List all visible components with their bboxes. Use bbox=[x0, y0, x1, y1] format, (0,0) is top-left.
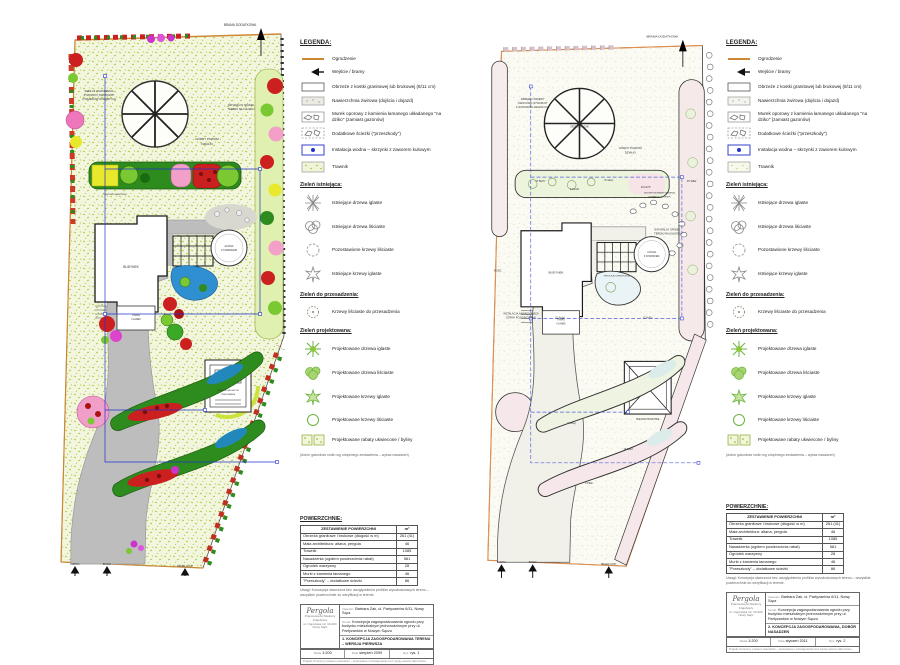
svg-text:TERENU NA CAŁOŚCI: TERENU NA CAŁOŚCI bbox=[654, 233, 680, 236]
rock-garden bbox=[205, 204, 257, 230]
svg-text:TARAS: TARAS bbox=[557, 318, 565, 321]
areas-unit: m² bbox=[823, 514, 844, 521]
gravel-surface-icon bbox=[300, 96, 326, 106]
legend-label: Ogrodzenie bbox=[758, 56, 782, 62]
legend-item-gate: Wejście / bramy bbox=[300, 67, 442, 77]
new-conifer-shrub-icon bbox=[726, 388, 752, 406]
lawn-icon bbox=[726, 161, 752, 173]
areas-header: ZESTAWIENIE POWIERZCHNI bbox=[727, 514, 823, 521]
svg-text:BRAMA GOSP.: BRAMA GOSP. bbox=[601, 563, 617, 566]
svg-text:32 FaTh': 32 FaTh' bbox=[641, 186, 651, 189]
legend-item-surface: Nawierzchnia żwirowa (dojścia i dojazd) bbox=[300, 96, 442, 106]
table-row: Murki z kamienia łamanego46 bbox=[727, 559, 844, 566]
svg-text:GÓRNY POZIOM: GÓRNY POZIOM bbox=[195, 136, 219, 141]
legend-item-kept-deciduous-shrub: Pozostawione krzewy liściaste bbox=[726, 242, 874, 258]
legend-item-new-deciduous-tree: Projektowane drzewa liściaste bbox=[726, 365, 874, 381]
title-block-left: Pergola Pracownia Architektury Krajobraz… bbox=[300, 604, 434, 665]
legend-item-water: Instalacja wodna – skrzynki z zaworem ku… bbox=[726, 144, 874, 156]
existing-conifer-shrub-icon bbox=[300, 265, 326, 283]
svg-text:DRZEWA I KRZEWY: DRZEWA I KRZEWY bbox=[521, 98, 545, 101]
svg-text:27 BeTh': 27 BeTh' bbox=[536, 180, 547, 183]
legend-label: Krzewy liściaste do przesadzenia bbox=[758, 309, 826, 315]
legend-item-surface: Nawierzchnia żwirowa (dojścia i dojazd) bbox=[726, 96, 874, 106]
svg-text:DZIAŁKI: DZIAŁKI bbox=[201, 142, 213, 146]
legend-title: LEGENDA: bbox=[726, 40, 874, 48]
svg-text:12 HoFo': 12 HoFo' bbox=[643, 316, 654, 319]
client-row: Inwestor: Barbara Żak, ul. Partyzantów 6… bbox=[340, 605, 433, 618]
legend-item-fence: Ogrodzenie bbox=[300, 55, 442, 63]
legend-item-lawn: Trawnik bbox=[726, 161, 874, 173]
stepping-path-icon bbox=[726, 127, 752, 139]
gate-top-label: BRAMA DODATKOWA bbox=[224, 23, 257, 27]
svg-text:9 JuSq': 9 JuSq' bbox=[568, 422, 577, 425]
svg-text:MIEJSCE PIKNIKOWE: MIEJSCE PIKNIKOWE bbox=[636, 419, 659, 421]
kept-deciduous-shrub-icon bbox=[300, 242, 326, 258]
legend-label: Projektowane krzewy iglaste bbox=[758, 394, 816, 400]
legend-title: LEGENDA: bbox=[300, 40, 442, 48]
drawing-title-row: 2. KONCEPCJA ZAGOSPODAROWANIA, DOBÓR NAS… bbox=[766, 624, 859, 636]
section-existing-title: Zieleń istniejąca: bbox=[726, 182, 874, 189]
legend-label: Istniejące drzewa iglaste bbox=[758, 200, 808, 206]
legend-label: Projektowane drzewa liściaste bbox=[758, 370, 820, 376]
stone-wall-icon bbox=[726, 111, 752, 123]
flower-bed-icon bbox=[726, 434, 752, 446]
legend-item-gate: Wejście / bramy bbox=[726, 67, 874, 77]
svg-text:14 RoZł': 14 RoZł' bbox=[570, 188, 580, 191]
areas-unit: m² bbox=[397, 526, 418, 533]
legend-right: LEGENDA: Ogrodzenie Wejście / bramy Obrz… bbox=[726, 40, 874, 653]
right-edge-beds bbox=[255, 69, 284, 339]
sheet-cell: Rys. rys. 1 bbox=[390, 650, 433, 658]
garden-design-sheet: { "legend": { "title": "LEGENDA:", "surf… bbox=[0, 0, 900, 600]
svg-text:ALTANA: ALTANA bbox=[225, 245, 234, 248]
legend-label: Nawierzchnia żwirowa (dojścia i dojazd) bbox=[332, 98, 413, 104]
firm-logo: Pergola Pracownia Architektury Krajobraz… bbox=[301, 605, 340, 648]
section-designed-title: Zieleń projektowana: bbox=[726, 328, 874, 335]
svg-text:45 TaBa': 45 TaBa' bbox=[687, 180, 697, 183]
legend-label: Projektowane krzewy liściaste bbox=[332, 417, 393, 423]
stone-wall-icon bbox=[300, 111, 326, 123]
new-deciduous-tree-icon bbox=[726, 365, 752, 381]
svg-text:I WĘDZARNIĘ: I WĘDZARNIĘ bbox=[221, 393, 236, 396]
areas-table: ZESTAWIENIE POWIERZCHNIm² Obrzeża granit… bbox=[300, 525, 418, 586]
flower-bed-icon bbox=[300, 434, 326, 446]
new-conifer-tree-icon bbox=[300, 340, 326, 358]
svg-text:BRAMA: BRAMA bbox=[529, 561, 537, 564]
svg-text:6 PiMu': 6 PiMu' bbox=[585, 482, 594, 485]
table-row: Trawnik1085 bbox=[301, 548, 418, 555]
table-row: Murki z kamienia łamanego46 bbox=[301, 571, 418, 578]
gate-arrow-icon bbox=[300, 67, 326, 77]
kept-deciduous-shrub-icon bbox=[726, 242, 752, 258]
legend-item-existing-deciduous-tree: Istniejące drzewa liściaste bbox=[726, 219, 874, 235]
areas-table: ZESTAWIENIE POWIERZCHNIm² Obrzeża granit… bbox=[726, 513, 844, 574]
svg-text:DZIAŁKI: DZIAŁKI bbox=[625, 151, 636, 155]
legend-label: Projektowane drzewa iglaste bbox=[332, 346, 390, 352]
legend-item-existing-conifer-tree: Istniejące drzewa iglaste bbox=[300, 194, 442, 212]
legend-left: LEGENDA: Ogrodzenie Wejście / bramy Obrz… bbox=[300, 40, 442, 665]
table-row: "Przeszkody" – dodatkowe ścieżki86 bbox=[301, 578, 418, 585]
svg-text:ŁAMANEGO W TEREN: ŁAMANEGO W TEREN bbox=[648, 196, 671, 199]
section-transplant-title: Zieleń do przesadzenia: bbox=[726, 292, 874, 299]
areas-title: POWIERZCHNIE: bbox=[726, 504, 874, 511]
legend-label: Murek oporowy z kamienia łamanego układa… bbox=[332, 111, 442, 122]
table-row: Nasadzenia (ogółem powierzchnia rabat)58… bbox=[301, 556, 418, 563]
svg-text:I GANEK: I GANEK bbox=[556, 322, 566, 325]
legend-item-transplant-shrub: Krzewy liściaste do przesadzenia bbox=[726, 305, 874, 319]
legend-item-new-conifer-tree: Projektowane drzewa iglaste bbox=[300, 340, 442, 358]
svg-text:KOJEC: KOJEC bbox=[494, 271, 502, 273]
legend-label: Obrzeże z kostki granitowej lub brukowej… bbox=[332, 84, 436, 90]
existing-conifer-shrub-icon bbox=[726, 265, 752, 283]
svg-text:FURTKA: FURTKA bbox=[70, 563, 80, 566]
svg-text:GÓRNY POZIOM: GÓRNY POZIOM bbox=[619, 145, 642, 150]
table-row: Mała architektura: altana, pergola46 bbox=[301, 541, 418, 548]
gazebo bbox=[211, 230, 247, 266]
existing-conifer-tree-icon bbox=[300, 194, 326, 212]
stepping-path-icon bbox=[300, 127, 326, 139]
legend-item-new-deciduous-shrub: Projektowane krzewy liściaste bbox=[300, 413, 442, 427]
legend-item-wall: Murek oporowy z kamienia łamanego układa… bbox=[300, 111, 442, 123]
legend-item-curb: Obrzeże z kostki granitowej lub brukowej… bbox=[726, 82, 874, 92]
existing-conifer-tree-icon bbox=[726, 194, 752, 212]
svg-text:Z GATUNKÓW JADALNYCH): Z GATUNKÓW JADALNYCH) bbox=[516, 106, 550, 109]
legend-label: Pozostawione krzewy liściaste bbox=[758, 247, 820, 253]
lawn-icon bbox=[300, 161, 326, 173]
legend-label: Projektowane krzewy iglaste bbox=[332, 394, 390, 400]
curb-icon bbox=[726, 82, 752, 92]
legend-label: Instalacja wodna – skrzynki z zaworem ku… bbox=[758, 147, 857, 153]
legend-item-obstacles: Dodatkowe ścieżki ("przeszkody") bbox=[726, 127, 874, 139]
table-row: Ogródek warzywny28 bbox=[301, 563, 418, 570]
water-box-icon bbox=[726, 144, 752, 156]
table-row: Obrzeża granitowe i brukowe (długość w m… bbox=[301, 533, 418, 540]
legend-item-fence: Ogrodzenie bbox=[726, 55, 874, 63]
table-row: Nasadzenia (ogółem powierzchnia rabat)58… bbox=[727, 544, 844, 551]
svg-text:Z KOMINKIEM: Z KOMINKIEM bbox=[644, 256, 659, 258]
project-row: Temat: Koncepcja zagospodarowania ogrodu… bbox=[340, 618, 433, 636]
legend-item-existing-conifer-shrub: Istniejące krzewy iglaste bbox=[726, 265, 874, 283]
legend-label: Projektowane rabaty ukwiecone / byliny bbox=[758, 437, 838, 443]
svg-text:GÓRNY POZIOM DZIAŁKI: GÓRNY POZIOM DZIAŁKI bbox=[506, 316, 536, 319]
existing-deciduous-tree-icon bbox=[300, 219, 326, 235]
gate-arrow-icon bbox=[726, 67, 752, 77]
legend-item-obstacles: Dodatkowe ścieżki ("przeszkody") bbox=[300, 127, 442, 139]
legend-item-new-conifer-shrub: Projektowane krzewy iglaste bbox=[300, 388, 442, 406]
legend-label: Istniejące krzewy iglaste bbox=[758, 271, 808, 277]
areas-block: POWIERZCHNIE: ZESTAWIENIE POWIERZCHNIm² … bbox=[726, 504, 874, 585]
legend-item-flower-bed: Projektowane rabaty ukwiecone / byliny bbox=[726, 434, 874, 446]
copyright-row: Projekt chroniony prawem autorskim – kop… bbox=[301, 658, 433, 664]
legend-label: Projektowane drzewa liściaste bbox=[332, 370, 394, 376]
legend-label: Nawierzchnia żwirowa (dojścia i dojazd) bbox=[758, 98, 839, 104]
svg-text:NATURALNY SPADEK: NATURALNY SPADEK bbox=[654, 229, 680, 232]
fence-icon bbox=[300, 55, 326, 63]
transplant-shrub-icon bbox=[300, 305, 326, 319]
legend-item-water: Instalacja wodna – skrzynki z zaworem ku… bbox=[300, 144, 442, 156]
legend-label: Dodatkowe ścieżki ("przeszkody") bbox=[758, 131, 827, 137]
legend-label: Murek oporowy z kamienia łamanego układa… bbox=[758, 111, 874, 122]
new-deciduous-tree-icon bbox=[300, 365, 326, 381]
legend-label: Instalacja wodna – skrzynki z zaworem ku… bbox=[332, 147, 431, 153]
legend-item-wall: Murek oporowy z kamienia łamanego układa… bbox=[726, 111, 874, 123]
date-cell: Data styczeń 2011 bbox=[771, 638, 815, 646]
curb-icon bbox=[300, 82, 326, 92]
central-flower-band bbox=[89, 162, 241, 189]
table-row: Ogródek warzywny28 bbox=[727, 551, 844, 558]
project-row: Temat: Koncepcja zagospodarowania ogrodu… bbox=[766, 606, 859, 624]
section-transplant-title: Zieleń do przesadzenia: bbox=[300, 292, 442, 299]
water-box-icon bbox=[300, 144, 326, 156]
svg-text:BRAMA GOSP.: BRAMA GOSP. bbox=[177, 565, 193, 568]
firm-logo: Pergola Pracownia Architektury Krajobraz… bbox=[727, 593, 766, 636]
existing-tree-walnut bbox=[544, 88, 614, 158]
table-row: "Przeszkody" – dodatkowe ścieżki86 bbox=[727, 566, 844, 573]
legend-item-curb: Obrzeże z kostki granitowej lub brukowej… bbox=[300, 82, 442, 92]
svg-text:INSTALACJA NAWADNIAJĄCA: INSTALACJA NAWADNIAJĄCA bbox=[503, 313, 539, 316]
areas-note: Uwagi: Koncepcja utworzona bez uwzględni… bbox=[726, 576, 874, 585]
legend-item-new-conifer-shrub: Projektowane krzewy iglaste bbox=[726, 388, 874, 406]
svg-text:OGRÓDEK WARZYWNY: OGRÓDEK WARZYWNY bbox=[103, 193, 128, 196]
entrance-arrows bbox=[72, 567, 189, 576]
svg-text:PERGOLA Z WINOROŚLĄ: PERGOLA Z WINOROŚLĄ bbox=[604, 275, 630, 278]
gate-top-label: BRAMA DODATKOWA bbox=[646, 35, 679, 39]
areas-block: POWIERZCHNIE: ZESTAWIENIE POWIERZCHNIm² … bbox=[300, 516, 442, 597]
new-conifer-shrub-icon bbox=[300, 388, 326, 406]
new-deciduous-shrub-icon bbox=[300, 413, 326, 427]
legend-label: Pozostawione krzewy liściaste bbox=[332, 247, 394, 253]
legend-label: Dodatkowe ścieżki ("przeszkody") bbox=[332, 131, 401, 137]
legend-label: Istniejące drzewa iglaste bbox=[332, 200, 382, 206]
scale-cell: Skala 1:200 bbox=[727, 638, 771, 646]
sheet-cell: Rys. rys. 2 bbox=[816, 638, 859, 646]
table-row: Mała architektura: altana, pergola46 bbox=[727, 529, 844, 536]
legend-label: Projektowane krzewy liściaste bbox=[758, 417, 819, 423]
legend-label: Wejście / bramy bbox=[758, 69, 791, 75]
svg-text:NATURALNY SPADEK: NATURALNY SPADEK bbox=[228, 103, 255, 107]
svg-text:Z KOMINKIEM: Z KOMINKIEM bbox=[221, 249, 237, 252]
section-existing-title: Zieleń istniejąca: bbox=[300, 182, 442, 189]
legend-label: Istniejące drzewa liściaste bbox=[332, 224, 385, 230]
legend-label: Projektowane drzewa iglaste bbox=[758, 346, 816, 352]
legend-item-flower-bed: Projektowane rabaty ukwiecone / byliny bbox=[300, 434, 442, 446]
svg-text:WKOMPONOWANIE KAMIENIA: WKOMPONOWANIE KAMIENIA bbox=[644, 192, 675, 195]
legend-label: Wejście / bramy bbox=[332, 69, 365, 75]
new-conifer-tree-icon bbox=[726, 340, 752, 358]
existing-deciduous-tree-icon bbox=[726, 219, 752, 235]
title-block-right: Pergola Pracownia Architektury Krajobraz… bbox=[726, 592, 860, 653]
legend-item-existing-conifer-shrub: Istniejące krzewy iglaste bbox=[300, 265, 442, 283]
areas-title: POWIERZCHNIE: bbox=[300, 516, 442, 523]
legend-label: Projektowane rabaty ukwiecone / byliny bbox=[332, 437, 412, 443]
svg-text:8 LaKą': 8 LaKą' bbox=[605, 179, 614, 182]
svg-text:MIEJSCE NA GRILLA: MIEJSCE NA GRILLA bbox=[217, 389, 239, 392]
scale-cell: Skala 1:200 bbox=[301, 650, 345, 658]
legend-label: Trawnik bbox=[332, 164, 348, 170]
existing-tree-walnut bbox=[122, 81, 188, 147]
svg-text:OWOCOWE (ŻYWOPŁOT: OWOCOWE (ŻYWOPŁOT bbox=[518, 102, 548, 105]
legend-item-kept-deciduous-shrub: Pozostawione krzewy liściaste bbox=[300, 242, 442, 258]
legend-label: Obrzeże z kostki granitowej lub brukowej… bbox=[758, 84, 862, 90]
legend-item-new-conifer-tree: Projektowane drzewa iglaste bbox=[726, 340, 874, 358]
legend-label: Istniejące drzewa liściaste bbox=[758, 224, 811, 230]
gravel-surface-icon bbox=[726, 96, 752, 106]
legend-item-new-deciduous-tree: Projektowane drzewa liściaste bbox=[300, 365, 442, 381]
plan-left-canvas: BRAMA DODATKOWA WZDŁUŻ OGRODZENIA ŻYWOPŁ… bbox=[55, 14, 295, 576]
svg-text:BUDYNEK: BUDYNEK bbox=[123, 265, 139, 269]
section-designed-title: Zieleń projektowana: bbox=[300, 328, 442, 335]
plan-right-canvas: 27 BeTh' 14 RoZł' 8 LaKą' 32 FaTh' 21 Sp… bbox=[482, 20, 716, 578]
legend-note: (dobór gatunków roślin wg odrębnego zest… bbox=[300, 453, 442, 458]
transplant-shrub-icon bbox=[726, 305, 752, 319]
table-row: Trawnik1085 bbox=[727, 536, 844, 543]
legend-item-new-deciduous-shrub: Projektowane krzewy liściaste bbox=[726, 413, 874, 427]
entrance-arrows bbox=[498, 565, 612, 578]
legend-label: Trawnik bbox=[758, 164, 774, 170]
fence-icon bbox=[726, 55, 752, 63]
legend-item-lawn: Trawnik bbox=[300, 161, 442, 173]
areas-note: Uwagi: Koncepcja utworzona bez uwzględni… bbox=[300, 588, 442, 597]
svg-text:ALTANA: ALTANA bbox=[647, 251, 656, 254]
svg-text:BUDYNEK: BUDYNEK bbox=[549, 271, 565, 275]
svg-text:I GANEK: I GANEK bbox=[131, 318, 141, 321]
svg-text:ORZECH WŁOSKI: ORZECH WŁOSKI bbox=[570, 126, 589, 128]
legend-item-transplant-shrub: Krzewy liściaste do przesadzenia bbox=[300, 305, 442, 319]
legend-label: Krzewy liściaste do przesadzenia bbox=[332, 309, 400, 315]
areas-header: ZESTAWIENIE POWIERZCHNI bbox=[301, 526, 397, 533]
legend-label: Ogrodzenie bbox=[332, 56, 356, 62]
legend-label: Istniejące krzewy iglaste bbox=[332, 271, 382, 277]
legend-item-existing-deciduous-tree: Istniejące drzewa liściaste bbox=[300, 219, 442, 235]
new-deciduous-shrub-icon bbox=[726, 413, 752, 427]
drawing-title-row: 1. KONCEPCJA ZAGOSPODAROWANIA TERENU – W… bbox=[340, 636, 433, 648]
svg-text:TARAS: TARAS bbox=[132, 314, 140, 317]
legend-note: (dobór gatunków roślin wg odrębnego zest… bbox=[726, 453, 874, 458]
table-row: Obrzeża granitowe i brukowe (długość w m… bbox=[727, 521, 844, 528]
svg-text:BRAMA: BRAMA bbox=[103, 563, 112, 566]
legend-item-existing-conifer-tree: Istniejące drzewa iglaste bbox=[726, 194, 874, 212]
svg-text:FURTKA: FURTKA bbox=[497, 561, 506, 564]
date-cell: Data sierpień 2009 bbox=[345, 650, 389, 658]
svg-text:18 CoAl': 18 CoAl' bbox=[624, 448, 634, 451]
copyright-row: Projekt chroniony prawem autorskim – kop… bbox=[727, 646, 859, 652]
